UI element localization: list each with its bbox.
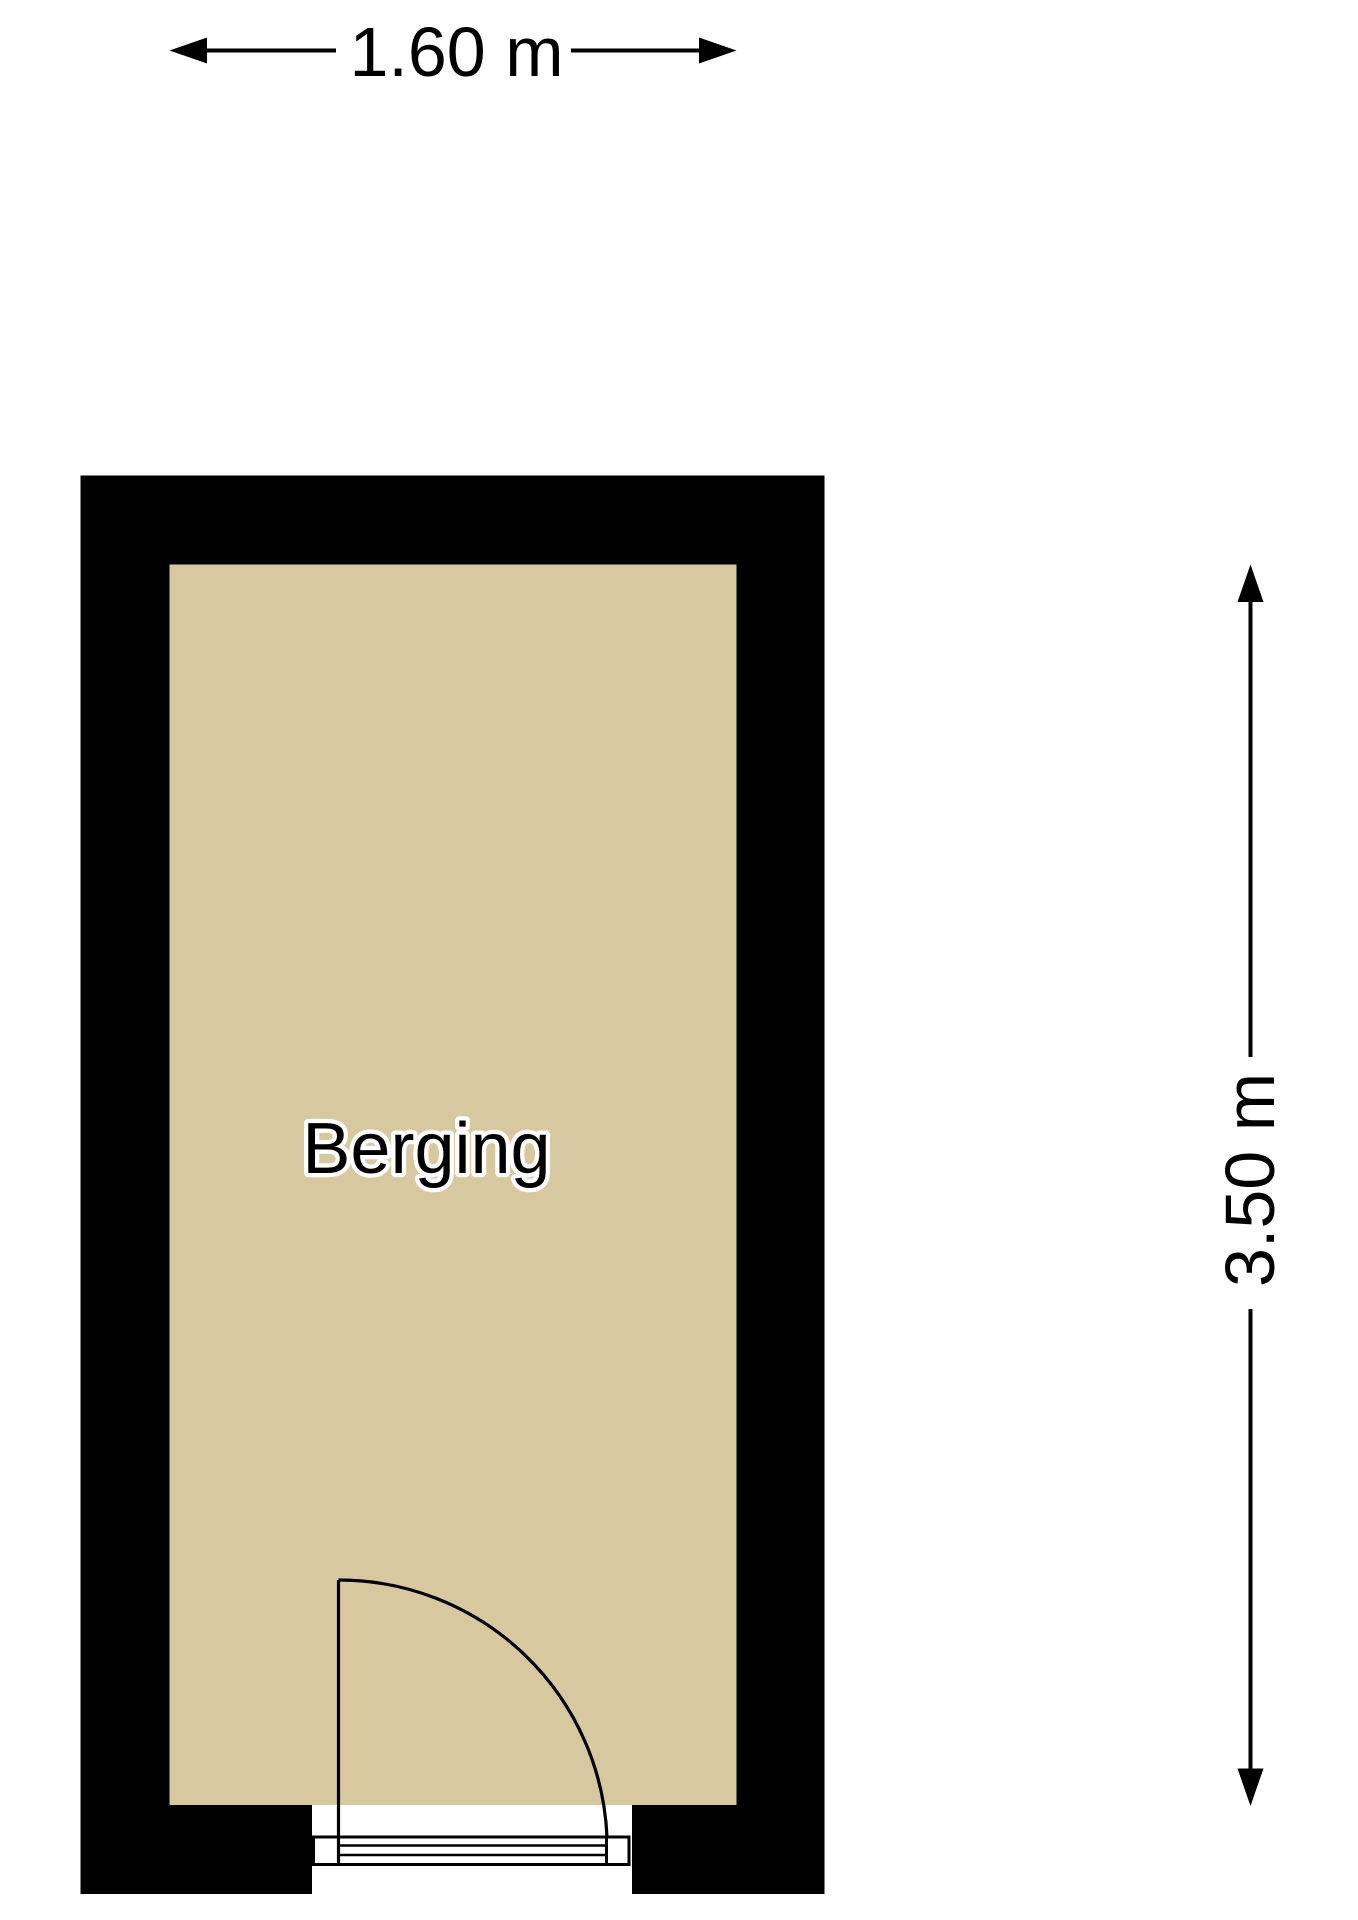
svg-text:Berging: Berging bbox=[302, 1109, 550, 1189]
svg-text:1.60 m: 1.60 m bbox=[350, 13, 564, 91]
svg-text:3.50 m: 3.50 m bbox=[1211, 1073, 1289, 1287]
